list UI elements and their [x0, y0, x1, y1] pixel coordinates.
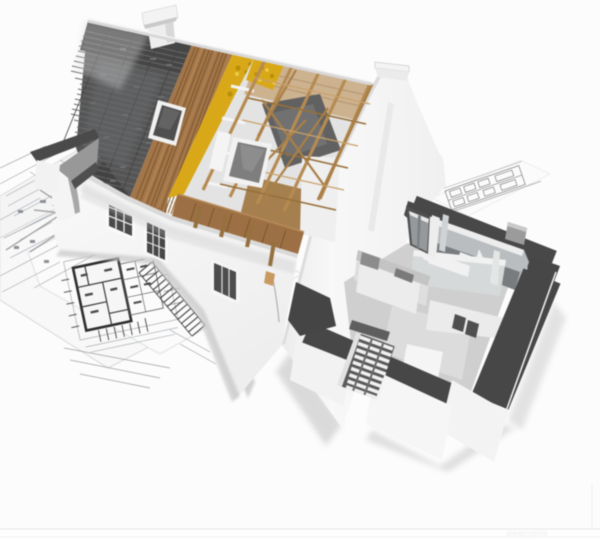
svg-text:dreamstime: dreamstime — [506, 529, 548, 538]
